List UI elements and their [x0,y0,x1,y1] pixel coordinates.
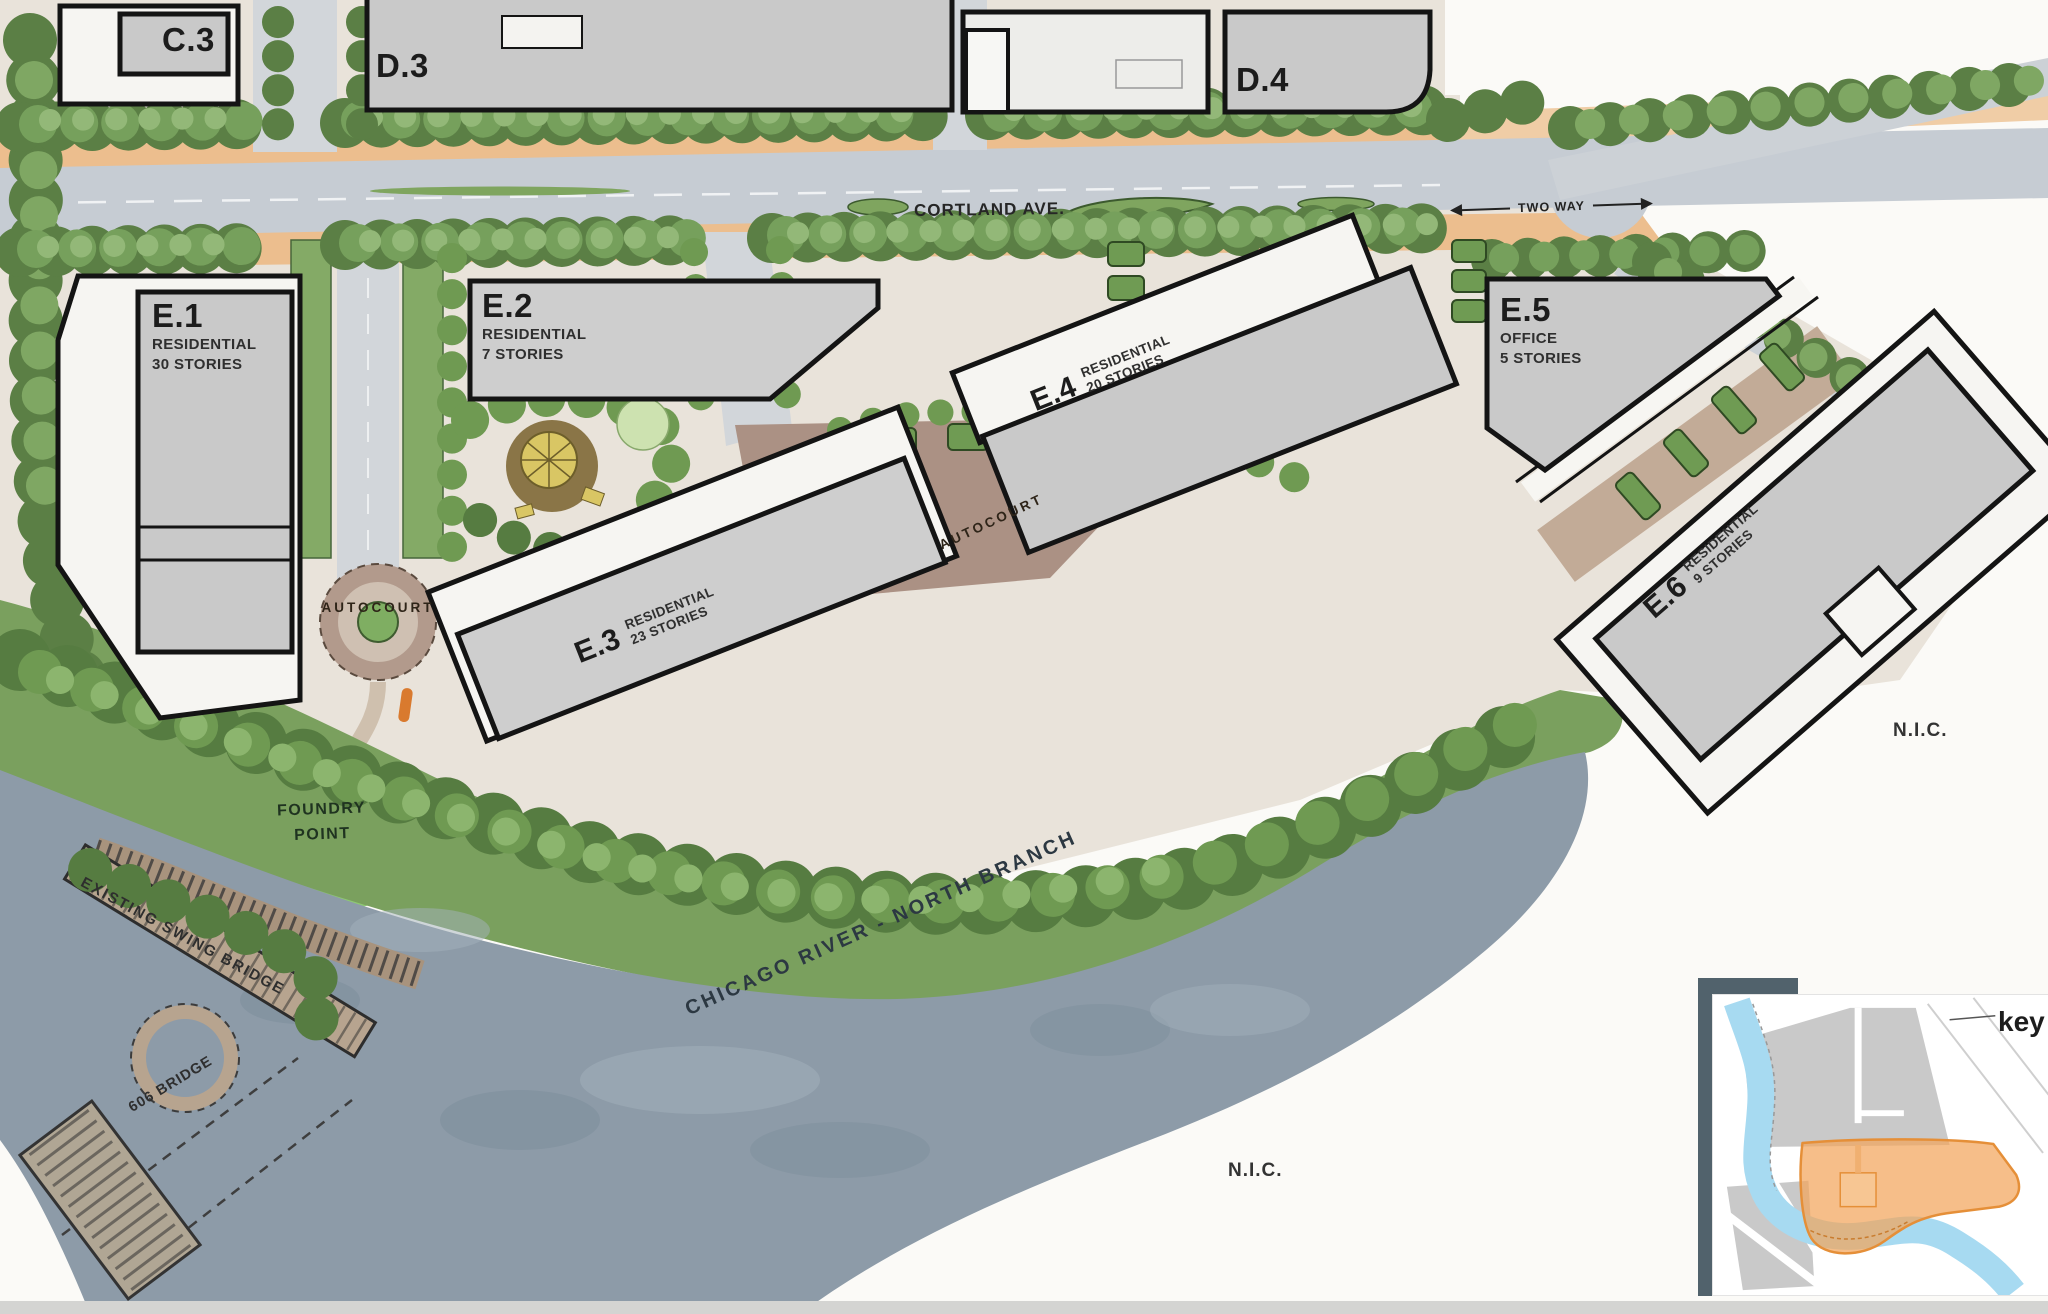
site-plan-canvas: C.3 D.3 D.4 E.1 RESIDENTIAL 30 STORIES E… [0,0,2048,1314]
parcel-label-c3: C.3 [162,22,215,58]
parcel-use: OFFICE [1500,331,1582,348]
parcel-id: E.2 [482,288,586,324]
parcel-id: C.3 [162,22,215,58]
parcel-id: E.5 [1500,292,1582,328]
parcel-label-d3: D.3 [376,48,429,84]
autocourt-west-label: AUTOCOURT [308,600,448,615]
parcel-label-e2: E.2 RESIDENTIAL 7 STORIES [482,288,586,363]
parcel-id: E.1 [152,298,256,334]
parcel-use: RESIDENTIAL [152,337,256,354]
cortland-ave-label: CORTLAND AVE. [914,199,1065,221]
building-d3-notch [502,16,582,48]
nic-label-east: N.I.C. [1893,720,1948,742]
key-label: key [1998,1006,2045,1038]
bottom-edge-strip [0,1301,2048,1314]
parcel-stories: 5 STORIES [1500,351,1582,368]
right-arrow-icon [1593,202,1651,207]
parcel-stories: 30 STORIES [152,357,256,374]
building-d3 [367,0,952,110]
slide-edge-left [1698,978,1713,1296]
parcel-stories: 7 STORIES [482,347,586,364]
two-way-text: TWO WAY [1518,199,1585,215]
parcel-label-e5: E.5 OFFICE 5 STORIES [1500,292,1582,367]
key-map-inset [1712,994,2048,1296]
left-arrow-icon [1452,207,1510,212]
key-map-artwork [1713,995,2048,1295]
parcel-label-e1: E.1 RESIDENTIAL 30 STORIES [152,298,256,373]
parcel-id: D.3 [376,48,429,84]
parcel-id: D.4 [1236,62,1289,98]
parcel-use: RESIDENTIAL [482,327,586,344]
nic-label-south: N.I.C. [1228,1160,1283,1182]
parcel-label-d4: D.4 [1236,62,1289,98]
foundry-point-label: FOUNDRY POINT [251,796,393,850]
